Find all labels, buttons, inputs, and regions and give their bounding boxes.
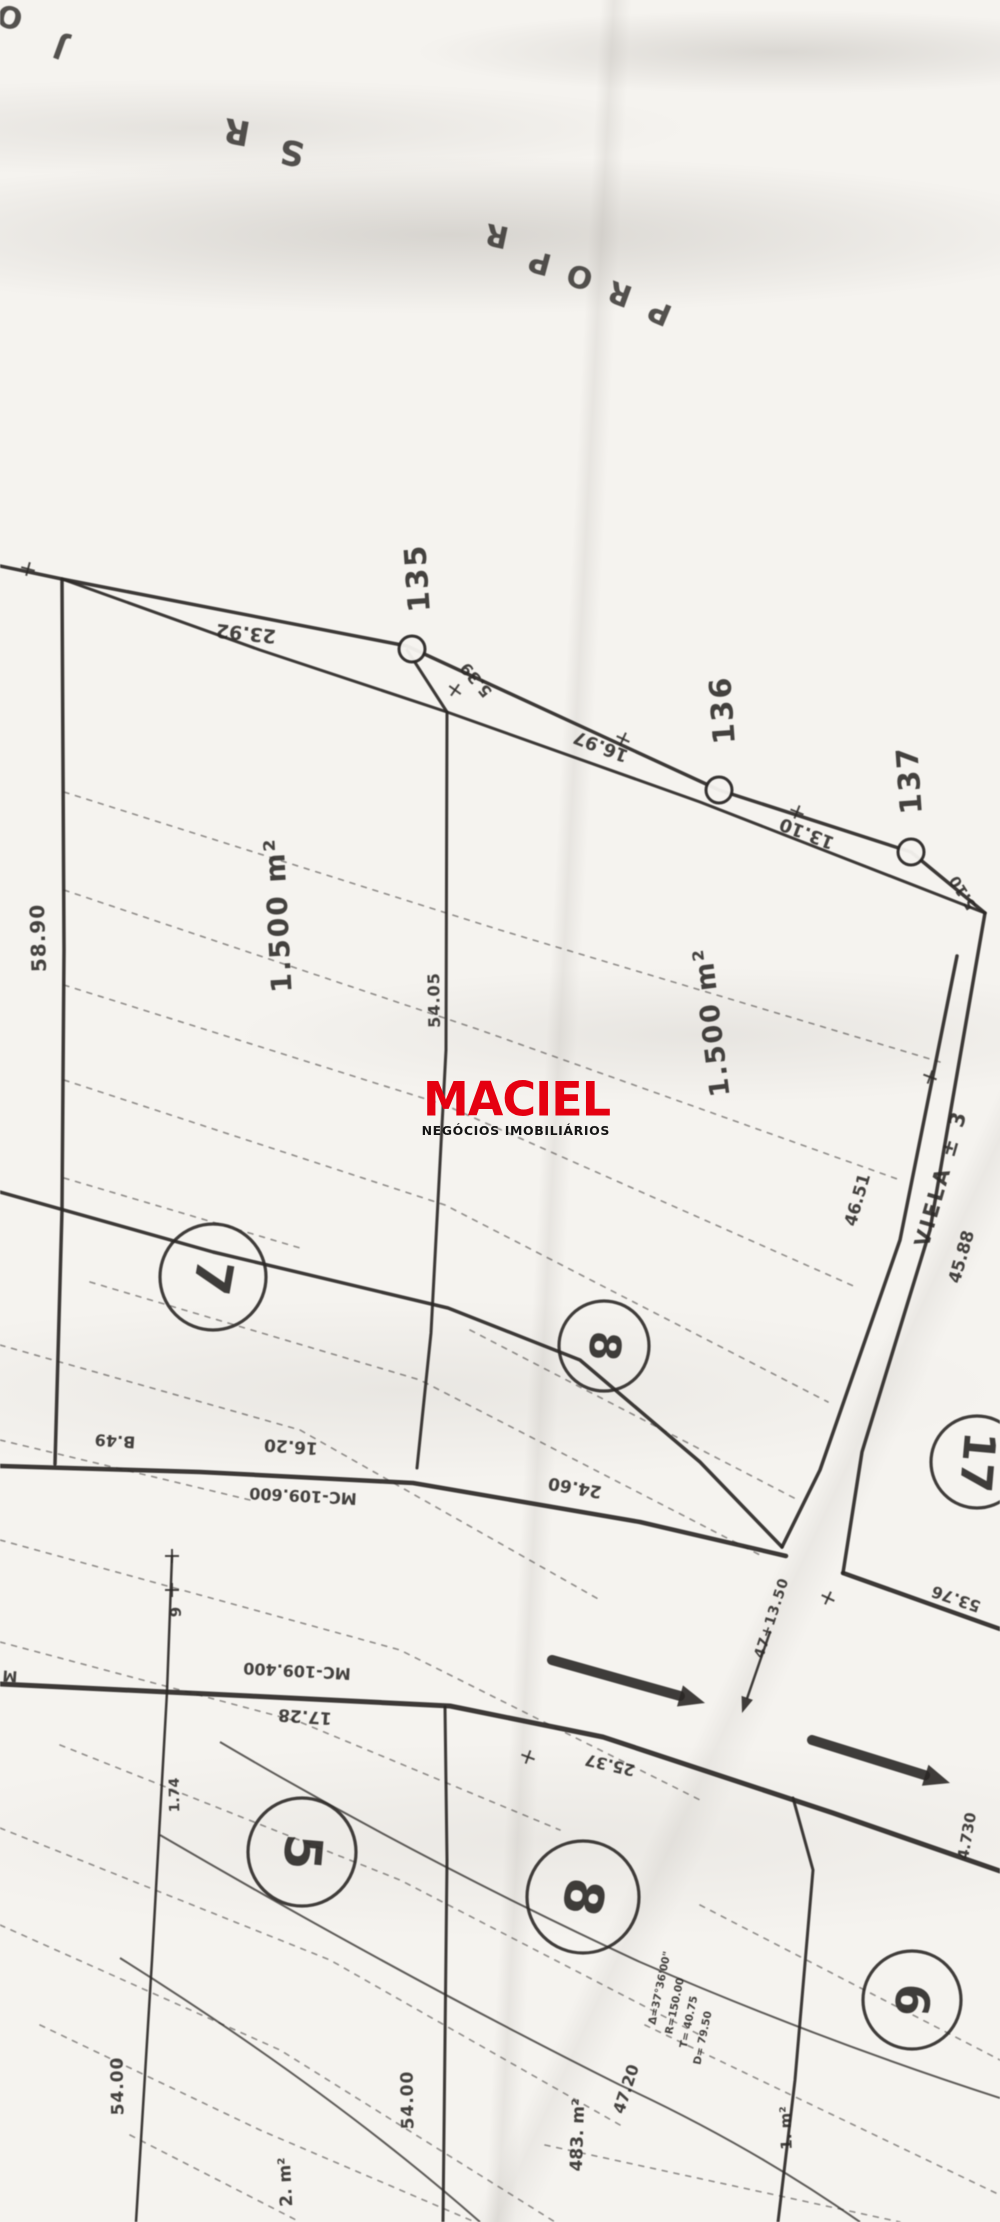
maciel-logo-text: MACIEL xyxy=(394,1076,610,1123)
contour-line xyxy=(90,1282,760,1555)
contour-line xyxy=(130,2135,300,2222)
map-label: J xyxy=(49,29,73,66)
map-label: 47+13.50 xyxy=(751,1576,792,1660)
map-label: 45.88 xyxy=(945,1228,979,1285)
contour-line xyxy=(0,1828,620,2125)
map-label: O xyxy=(0,0,27,36)
map-label: B.49 xyxy=(94,1430,136,1452)
map-label: 5.10 xyxy=(946,873,981,914)
direction-arrow-shaft xyxy=(812,1740,925,1775)
maciel-logo-subtitle: NEGÓCIOS IMOBILIÁRIOS xyxy=(394,1125,610,1138)
boundary-line xyxy=(0,1684,1000,1871)
tick-mark xyxy=(819,1589,838,1608)
map-label: MC-109.400 xyxy=(243,1659,351,1684)
map-label: 1.500 m² xyxy=(687,945,736,1098)
map-label: P xyxy=(525,242,555,282)
map-label: 9 xyxy=(167,1607,185,1617)
map-label: R xyxy=(603,273,637,314)
contour-line xyxy=(0,1345,600,1600)
tick-mark xyxy=(445,680,464,699)
maciel-logo: MACIEL NEGÓCIOS IMOBILIÁRIOS xyxy=(394,1076,610,1138)
map-label: 1.74 xyxy=(167,1777,184,1812)
tick-mark xyxy=(519,1748,537,1766)
map-label: 46.51 xyxy=(841,1171,875,1228)
map-label: P xyxy=(643,292,677,333)
map-label: 5.39 xyxy=(456,659,496,701)
map-label: 2. m² xyxy=(275,2157,298,2207)
map-label: VIELA ± 3 xyxy=(910,1107,972,1250)
map-label: 24.60 xyxy=(547,1472,604,1501)
map-label: 16.20 xyxy=(263,1434,318,1458)
direction-arrow-head xyxy=(742,1696,753,1713)
lot-number-8: 8 xyxy=(549,1873,616,1920)
boundary-line xyxy=(136,1556,172,2222)
map-label: 47.20 xyxy=(609,2062,643,2116)
contour-line xyxy=(64,1178,300,1248)
boundary-line xyxy=(0,1192,782,1547)
boundary-line xyxy=(778,1798,813,2222)
lot-number-8: 8 xyxy=(578,1329,630,1363)
boundary-line xyxy=(0,566,985,913)
map-label: S xyxy=(276,130,307,174)
map-label: 54.05 xyxy=(424,972,444,1028)
boundary-line xyxy=(62,579,985,913)
lot-number-7: 7 xyxy=(181,1255,245,1300)
scanned-plat-paper: 7817586OJRSRPORP23.921355.3916.9713613.1… xyxy=(0,0,1000,2222)
map-label: O xyxy=(563,256,598,297)
map-label: 4.730 xyxy=(954,1811,980,1861)
survey-point-137 xyxy=(898,839,924,865)
direction-arrow-head xyxy=(922,1765,950,1786)
terrain-curve xyxy=(120,1958,480,2222)
map-label: 483. m² xyxy=(567,2098,590,2172)
map-label: 1.500 m² xyxy=(257,836,298,993)
map-label: 58.90 xyxy=(25,903,51,972)
map-label: R xyxy=(482,215,512,254)
map-label: 17.28 xyxy=(277,1704,332,1728)
map-label: 136 xyxy=(703,675,743,746)
contour-line xyxy=(545,2145,900,2222)
survey-point-135 xyxy=(399,636,425,662)
direction-arrow-head xyxy=(677,1685,705,1706)
map-label: 1. m² xyxy=(776,2106,796,2150)
contour-line xyxy=(700,1905,1000,2060)
tick-mark xyxy=(165,1549,179,1563)
map-label: 54.00 xyxy=(107,2056,128,2115)
lot-number-17: 17 xyxy=(949,1429,1000,1494)
map-label: 137 xyxy=(890,745,930,816)
map-label: 23.92 xyxy=(215,619,277,647)
direction-arrow-shaft xyxy=(552,1660,680,1696)
map-label: R xyxy=(221,109,254,153)
map-label: MC-109.600 xyxy=(249,1484,357,1509)
lot-number-6: 6 xyxy=(884,1982,941,2019)
lot-number-5: 5 xyxy=(271,1832,334,1873)
contour-line xyxy=(470,1330,798,1500)
line xyxy=(451,684,459,695)
map-label: 54.00 xyxy=(397,2070,418,2129)
map-label: M xyxy=(2,1667,18,1686)
tick-mark xyxy=(165,1583,179,1597)
boundary-line xyxy=(443,1707,447,2222)
survey-point-136 xyxy=(706,777,732,803)
boundary-line xyxy=(55,579,64,1464)
boundary-line xyxy=(0,1466,786,1556)
map-label: 135 xyxy=(398,543,438,614)
